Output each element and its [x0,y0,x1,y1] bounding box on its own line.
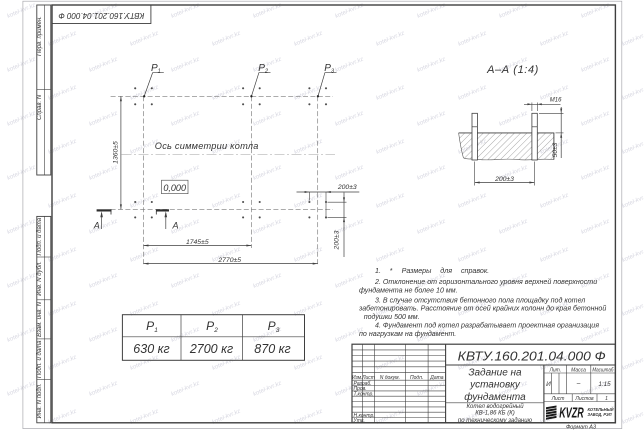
svg-text:200±3: 200±3 [334,230,341,250]
svg-text:Т.контр.: Т.контр. [354,392,374,398]
svg-text:200±3: 200±3 [494,176,514,183]
svg-text:И: И [546,381,551,388]
svg-text:КВ-1,86 КБ (К): КВ-1,86 КБ (К) [475,410,515,416]
svg-text:3. В случае отсутствия бетонно: 3. В случае отсутствия бетонного пола пл… [375,297,585,305]
svg-text:Листов: Листов [574,396,594,402]
svg-text:–: – [576,381,581,388]
svg-text:фундамента не более 10 мм.: фундамента не более 10 мм. [359,286,458,294]
svg-text:Формат А3: Формат А3 [566,425,597,430]
svg-text:1745±5: 1745±5 [186,239,209,246]
svg-text:А–А (1:4): А–А (1:4) [486,64,539,76]
svg-text:КВТУ.160.201.04.000 Ф: КВТУ.160.201.04.000 Ф [458,348,606,363]
svg-text:Подп.: Подп. [410,375,423,381]
svg-text:A: A [171,220,178,230]
svg-text:Ось симметрии котла: Ось симметрии котла [155,141,259,151]
svg-text:КВТУ.160.201.04.000 Ф: КВТУ.160.201.04.000 Ф [58,11,145,20]
svg-text:фундамента: фундамента [464,391,526,403]
svg-text:Котел водогрейный: Котел водогрейный [466,403,524,410]
svg-text:Справ. N: Справ. N [37,94,43,120]
svg-text:Задание на: Задание на [468,367,522,378]
svg-text:200±3: 200±3 [337,184,357,191]
svg-text:установку: установку [469,380,521,391]
svg-text:подушки 500 мм.: подушки 500 мм. [364,313,420,321]
svg-text:50±3: 50±3 [552,142,559,157]
svg-text:Дата: Дата [429,375,443,381]
svg-text:2700 кг: 2700 кг [189,342,233,356]
svg-text:2. Отклонение от горизонтально: 2. Отклонение от горизонтального уровня … [374,278,597,286]
svg-text:по техническому заданию: по техническому заданию [458,418,533,424]
svg-text:1. * Размеры для справок.: 1. * Размеры для справок. [375,267,489,275]
svg-text:Масса: Масса [571,368,586,374]
svg-text:Перв. примен.: Перв. примен. [37,16,43,56]
svg-text:Инв. N дубл.: Инв. N дубл. [37,261,43,296]
svg-text:ЗАВОД, РЭП: ЗАВОД, РЭП [588,412,613,417]
svg-text:М16: М16 [550,97,562,103]
svg-text:1: 1 [605,396,608,402]
svg-text:0,000: 0,000 [163,183,186,193]
svg-text:2770±5: 2770±5 [217,257,241,264]
svg-text:630 кг: 630 кг [133,342,169,356]
svg-text:по нагрузкам на фундамент.: по нагрузкам на фундамент. [359,330,456,338]
svg-text:Инв. N подл.: Инв. N подл. [37,383,43,418]
svg-text:Лист: Лист [551,396,565,402]
svg-text:забетонировать. Расстояние от: забетонировать. Расстояние от осей крайн… [358,305,606,313]
svg-text:Масштаб: Масштаб [592,368,613,374]
svg-text:KVZR: KVZR [559,404,584,421]
svg-text:Лит.: Лит. [548,368,561,374]
svg-text:1360±5: 1360±5 [112,141,119,164]
svg-text:Подп. и дата: Подп. и дата [37,217,43,255]
svg-text:1:15: 1:15 [598,381,611,388]
svg-text:Утв.: Утв. [354,418,365,424]
svg-text:Взам. инв. N: Взам. инв. N [37,301,43,337]
svg-text:N докум.: N докум. [380,375,400,381]
svg-text:870 кг: 870 кг [254,342,290,356]
svg-text:4. Фундамент под котел разраба: 4. Фундамент под котел разрабатывает про… [375,322,599,330]
svg-text:A: A [93,220,100,230]
svg-text:Подп. и дата: Подп. и дата [37,340,43,378]
